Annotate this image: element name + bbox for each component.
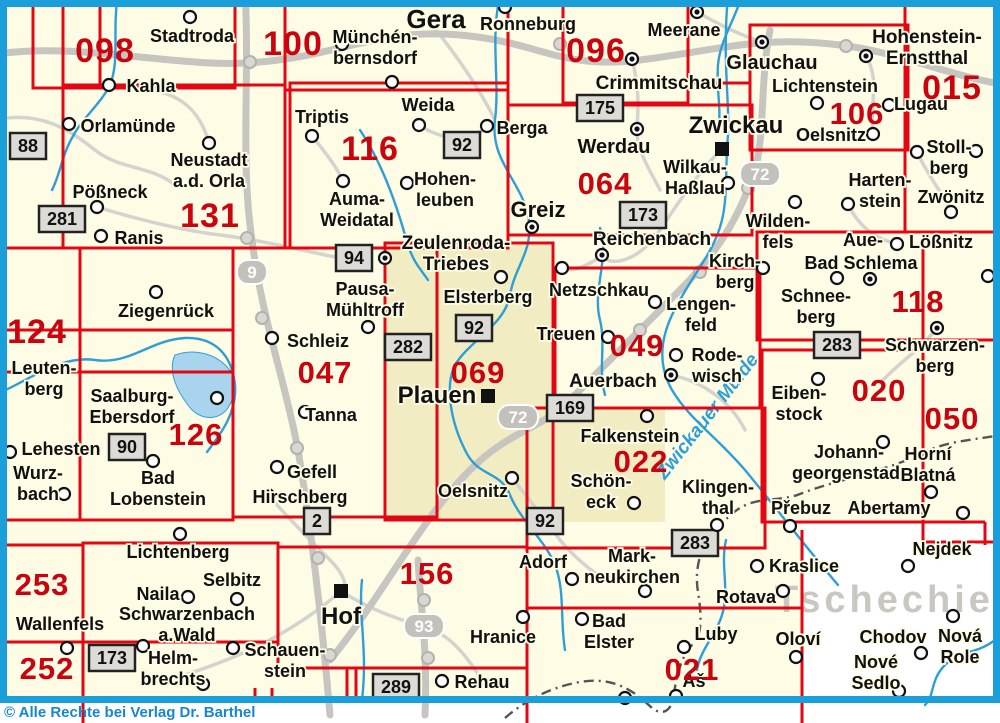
city-label: Oelsnitz [438,481,508,501]
city-marker-circle [337,175,349,187]
sheet-number-100: 100 [263,25,323,63]
city-marker-square [715,142,729,156]
city-label: Lehesten [21,439,100,459]
road-shield-number: 282 [393,337,423,357]
city-marker-dot [759,39,764,44]
sheet-number-252: 252 [20,651,75,686]
city-label: Zwickau [689,112,784,139]
city-label: Aue- [843,230,883,250]
city-label: Auerbach [569,371,657,392]
sheet-number-253: 253 [15,567,70,602]
city-label: Crimmitschau [596,73,723,94]
city-marker-dot [634,126,639,131]
road-junction [256,312,268,324]
city-marker-circle [91,201,103,213]
city-marker-square [334,584,348,598]
city-marker-circle [63,118,75,130]
city-label: Eiben-stock [771,383,826,424]
road-shield-number: 173 [628,205,658,225]
city-marker-circle [641,410,653,422]
sheet-number-126: 126 [169,417,224,452]
road-junction [422,652,434,664]
road-shield-number: 283 [680,533,710,553]
city-label: Hof [321,603,362,630]
sheet-number-106: 106 [830,96,885,131]
road-shield-number: 175 [585,98,615,118]
city-label: Orlamünde [80,116,175,136]
city-marker-circle [925,486,937,498]
city-marker-circle [271,461,283,473]
city-marker-circle [790,651,802,663]
city-marker-circle [911,146,923,158]
city-marker-circle [266,332,278,344]
road-shield-number: 92 [464,318,484,338]
road-junction [291,442,303,454]
sheet-number-096: 096 [566,32,626,70]
city-marker-dot [934,325,939,330]
city-marker-circle [831,272,843,284]
city-marker-square [481,389,495,403]
city-marker-circle [649,296,661,308]
city-marker-circle [789,196,801,208]
city-marker-circle [970,145,982,157]
city-label: Pausa-Mühltroff [326,279,405,320]
city-marker-circle [947,610,959,622]
city-marker-circle [945,206,957,218]
autobahn-shield-number: 72 [751,165,770,184]
city-marker-circle [566,573,578,585]
city-label: Netzschkau [549,280,649,300]
city-label: Saalburg-Ebersdorf [89,386,175,427]
city-marker-dot [668,372,673,377]
city-marker-circle [203,137,215,149]
map-canvas: Zwickauer MuldeTschechien881759228194173… [0,0,1000,723]
road-shield-number: 281 [47,209,77,229]
city-label: Přebuz [771,498,831,518]
sheet-number-131: 131 [180,197,240,235]
sheet-number-021: 021 [665,652,720,687]
city-marker-circle [436,675,448,687]
city-marker-circle [306,130,318,142]
road-junction [840,40,852,52]
road-junction [312,552,324,564]
city-label: Adorf [519,552,568,572]
road-shield-number: 2 [312,511,322,531]
road-shield-number: 92 [452,135,472,155]
road-junction [418,594,430,606]
city-label: Werdau [578,136,651,158]
city-label: Ranis [114,228,163,248]
city-label: Hohen-leuben [414,169,476,210]
sheet-number-098: 098 [75,32,135,70]
sheet-number-064: 064 [578,166,633,201]
city-label: Greiz [510,197,565,222]
city-marker-circle [957,507,969,519]
city-label: NovéSedlo [851,652,900,693]
road-shield-number: 90 [117,437,137,457]
road-junction [324,649,336,661]
city-marker-circle [517,611,529,623]
city-label: Glauchau [726,52,817,74]
city-marker-circle [495,271,507,283]
city-marker-circle [182,591,194,603]
sheet-number-156: 156 [400,556,455,591]
city-label: Meerane [647,20,720,40]
city-label: Münchén-bernsdorf [333,27,419,68]
road-junction [244,56,256,68]
city-label: Rotava [716,587,777,607]
city-label: Nejdek [912,539,972,559]
city-label: Tanna [305,405,358,425]
city-label: Abertamy [847,498,930,518]
city-marker-circle [58,488,70,500]
city-label: Auma-Weidatal [320,189,394,230]
city-marker-circle [670,349,682,361]
city-label: Lichtenstein [772,76,878,96]
city-label: Ziegenrück [118,301,215,321]
city-marker-circle [628,497,640,509]
autobahn-shield-number: 9 [247,263,256,282]
city-marker-dot [599,252,604,257]
city-marker-circle [481,120,493,132]
sheet-number-124: 124 [7,313,67,351]
city-label: Hirschberg [252,487,347,507]
city-marker-dot [867,276,872,281]
city-marker-circle [362,321,374,333]
city-marker-dot [382,255,387,260]
city-label: Rode-wisch [691,345,743,386]
city-label: Schleiz [287,331,349,351]
city-label: Naila [136,584,180,604]
city-marker-circle [891,238,903,250]
city-label: Helm-brechts [140,648,205,689]
city-marker-circle [842,198,854,210]
city-label: Wallenfels [16,614,104,634]
city-marker-circle [576,613,588,625]
city-marker-circle [982,270,994,282]
city-marker-circle [413,119,425,131]
city-label: Lichtenberg [126,542,229,562]
sheet-number-116: 116 [341,130,399,168]
city-marker-circle [150,286,162,298]
city-marker-circle [902,560,914,572]
city-marker-dot [694,9,699,14]
city-marker-dot [629,56,634,61]
city-marker-circle [386,76,398,88]
city-marker-circle [227,642,239,654]
sheet-number-049: 049 [610,328,665,363]
city-label: Hranice [470,627,536,647]
road-shield-number: 92 [535,511,555,531]
city-label: Weida [402,95,456,115]
city-marker-circle [711,519,723,531]
city-label: Kraslice [769,556,839,576]
city-marker-circle [211,392,223,404]
city-label: Stadtroda [150,26,235,46]
city-label: Chodov [860,627,927,647]
autobahn-shield-number: 93 [415,617,434,636]
city-marker-circle [401,177,413,189]
sheet-number-069: 069 [451,355,506,390]
road-shield-number: 94 [344,248,364,268]
city-marker-circle [95,230,107,242]
city-marker-circle [556,262,568,274]
city-marker-circle [751,560,763,572]
country-label: Tschechien [775,579,1000,621]
city-label: Selbitz [203,570,261,590]
city-label: Triptis [295,107,349,127]
city-label: HorníBlatná [900,444,956,485]
road-shield-number: 173 [97,648,127,668]
city-label: Ronneburg [480,14,576,34]
city-label: Reichenbach [593,229,711,250]
city-label: Luby [695,624,738,644]
road-junction [241,232,253,244]
city-marker-circle [784,520,796,532]
city-label: Berga [496,118,548,138]
city-label: Kahla [126,76,176,96]
city-label: Zwönitz [918,187,985,207]
city-label: Lößnitz [909,232,973,252]
sheet-number-015: 015 [922,69,982,107]
city-label: Treuen [536,324,595,344]
road-shield-number: 88 [18,136,38,156]
sheet-number-020: 020 [852,373,907,408]
city-label: Wilkau-Haßlau [663,157,727,198]
city-label: Pößneck [72,182,148,202]
city-label: Kirch-berg [709,251,761,292]
autobahn-shield-number: 72 [509,408,528,427]
city-marker-dot [529,224,534,229]
city-marker-circle [147,455,159,467]
road-shield-number: 283 [822,335,852,355]
sheet-number-047: 047 [298,355,353,390]
city-marker-circle [174,528,186,540]
city-marker-circle [184,11,196,23]
road-shield-number: 169 [555,398,585,418]
sheet-number-118: 118 [891,284,944,319]
city-label: Oloví [775,629,821,649]
map-index-page: Zwickauer MuldeTschechien881759228194173… [0,0,1000,723]
city-label: Neustadta.d. Orla [170,150,247,191]
city-marker-circle [777,585,789,597]
city-marker-circle [103,79,115,91]
city-marker-dot [863,53,868,58]
road-shield-number: 289 [381,677,411,697]
city-label: Elsterberg [443,287,532,307]
city-label: Rehau [454,672,509,692]
city-label: Stoll-berg [927,137,972,178]
sheet-number-050: 050 [925,401,980,436]
city-marker-circle [915,647,927,659]
city-marker-circle [811,97,823,109]
city-label: Gefell [287,462,337,482]
city-label: Bad Schlema [804,253,918,273]
city-label: NováRole [938,626,983,667]
sheet-number-022: 022 [614,444,669,479]
copyright-text: © Alle Rechte bei Verlag Dr. Barthel [4,703,1000,723]
city-label: Hohenstein-Ernstthal [872,27,982,69]
city-label: Wurz-bach [13,463,63,504]
